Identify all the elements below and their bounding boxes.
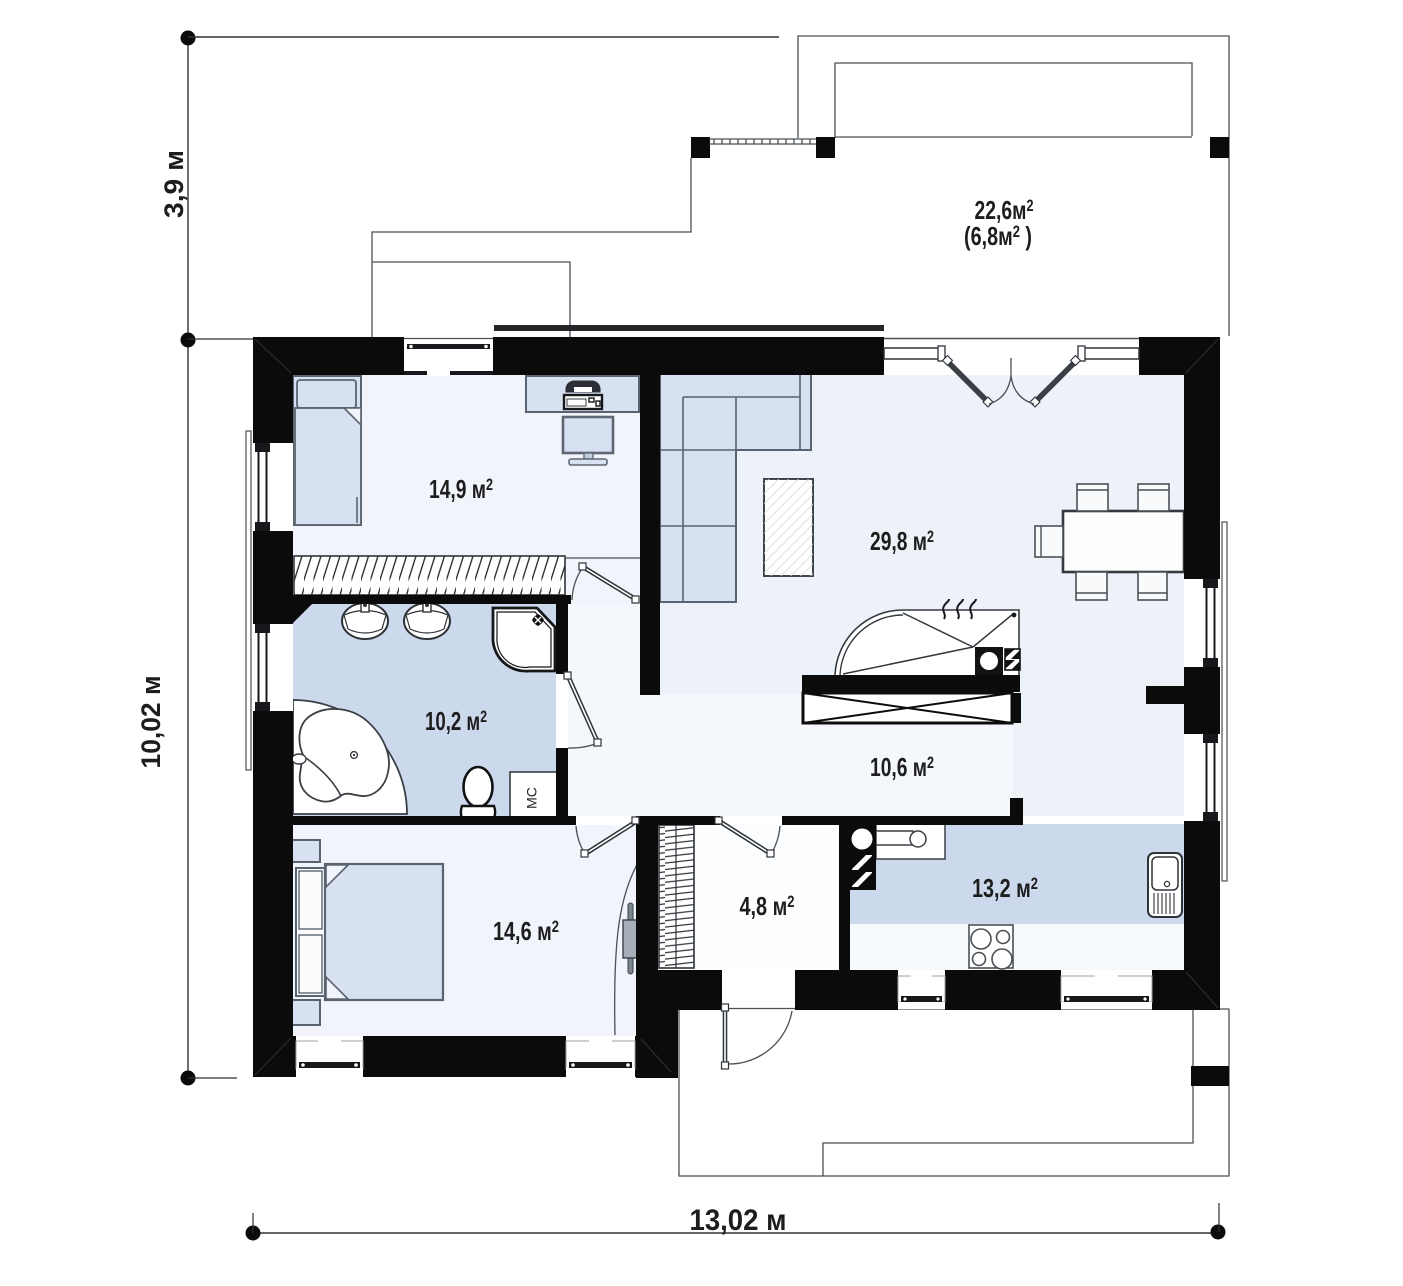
svg-text:4,8 м2: 4,8 м2 bbox=[740, 891, 795, 921]
svg-text:10,2 м2: 10,2 м2 bbox=[425, 706, 487, 736]
svg-text:10,6 м2: 10,6 м2 bbox=[870, 752, 934, 782]
svg-text:14,9 м2: 14,9 м2 bbox=[429, 474, 493, 504]
svg-text:(6,8м2 ): (6,8м2 ) bbox=[964, 221, 1032, 251]
svg-text:3,9 м: 3,9 м bbox=[159, 150, 189, 218]
svg-text:10,02 м: 10,02 м bbox=[136, 676, 166, 769]
svg-text:13,2 м2: 13,2 м2 bbox=[972, 873, 1038, 903]
svg-text:14,6 м2: 14,6 м2 bbox=[493, 916, 559, 946]
svg-text:29,8 м2: 29,8 м2 bbox=[870, 526, 934, 556]
svg-text:MC: MC bbox=[524, 787, 540, 809]
svg-text:13,02 м: 13,02 м bbox=[690, 1204, 787, 1237]
